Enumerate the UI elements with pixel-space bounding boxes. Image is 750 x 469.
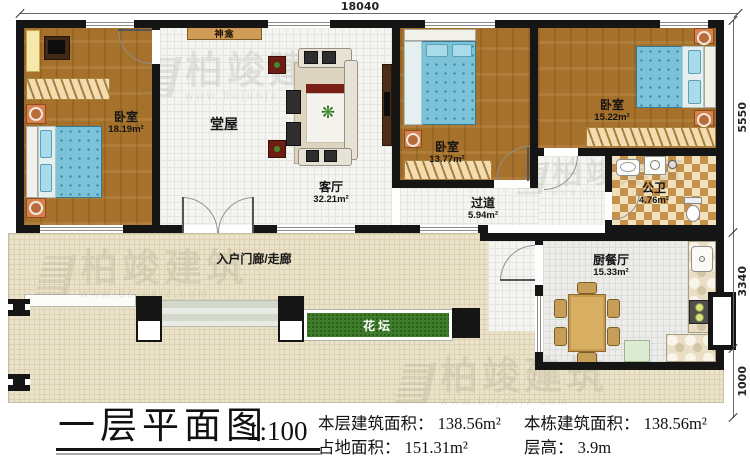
room-area: 18.19m²	[108, 124, 143, 135]
pillar-notch	[25, 379, 30, 385]
dimension-right-value: 5550	[736, 102, 749, 133]
bed-headboard	[26, 126, 38, 198]
burner-icon	[695, 313, 704, 322]
side-table	[268, 56, 286, 74]
pillow	[40, 130, 52, 158]
room-name: 公卫	[639, 181, 669, 195]
room-name: 卧室	[429, 140, 464, 154]
entry-steps	[160, 300, 282, 327]
window	[535, 296, 543, 352]
room-label-hall: 堂屋	[210, 116, 238, 133]
room-label-bedroom-mid: 卧室 13.77m²	[429, 140, 464, 166]
tv-icon	[48, 40, 65, 54]
stat-value: 3.9m	[578, 438, 611, 457]
pillar-notch	[8, 304, 13, 310]
room-label-porch: 入户门廊/走廊	[216, 252, 291, 266]
wall	[605, 225, 724, 233]
plant-icon	[274, 146, 280, 152]
window	[277, 225, 355, 233]
pillow	[426, 44, 448, 57]
sofa-cushion	[324, 150, 337, 162]
room-name: 客厅	[313, 180, 348, 194]
tv-icon	[384, 92, 390, 116]
window	[425, 20, 495, 28]
room-area: 32.21m²	[313, 194, 348, 205]
lamp-icon	[697, 31, 711, 45]
room-area: 15.33m²	[593, 267, 629, 278]
flower-bed-label: 花坛	[363, 317, 393, 334]
stat-floor-area: 本层建筑面积： 138.56m²	[318, 410, 501, 434]
door-leaf	[527, 147, 529, 181]
room-label-corridor: 过道 5.94m²	[468, 196, 498, 222]
dimension-text: 5550	[736, 102, 749, 133]
porch-column	[452, 308, 480, 338]
room-name: 过道	[468, 196, 498, 210]
stat-value: 151.31m²	[405, 438, 468, 457]
wall	[535, 362, 724, 370]
wardrobe	[26, 78, 110, 100]
stat-label: 层高：	[524, 438, 574, 457]
window	[660, 20, 708, 28]
toilet-tank	[684, 197, 702, 204]
room-name: 卧室	[108, 110, 143, 124]
nightstand	[26, 198, 46, 218]
stat-value: 138.56m²	[438, 414, 501, 433]
toilet-bowl	[686, 205, 700, 222]
dimension-right-value: 3340	[736, 266, 749, 297]
armchair	[286, 122, 301, 146]
plant-icon: ❋	[319, 104, 337, 122]
lamp-icon	[29, 201, 43, 215]
room-label-bedroom-right: 卧室 15.22m²	[594, 98, 629, 124]
wall	[16, 20, 24, 233]
dimension-right-value: 1000	[736, 366, 749, 397]
room-area: 5.94m²	[468, 210, 498, 221]
plan-scale: 1:100	[246, 418, 308, 445]
sink-basin-icon	[620, 162, 636, 172]
room-area: 4.76m²	[639, 195, 669, 206]
stat-footprint: 占地面积： 151.31m²	[318, 434, 468, 458]
door-leaf	[500, 279, 535, 281]
flower-bed: 花坛	[304, 310, 452, 340]
burner-icon	[695, 303, 704, 312]
dining-chair	[554, 299, 567, 318]
plan-title: 一层平面图	[58, 408, 268, 445]
room-name: 卧室	[594, 98, 629, 112]
room-name: 入户门廊/走廊	[216, 252, 291, 266]
bed-sheet	[404, 41, 422, 125]
porch-column	[278, 296, 304, 319]
door-opening	[605, 192, 612, 220]
door-opening	[544, 148, 578, 156]
nightstand	[404, 130, 422, 148]
room-area: 13.77m²	[429, 154, 464, 165]
door-leaf	[118, 29, 152, 31]
room-label-living: 客厅 32.21m²	[313, 180, 348, 206]
window	[268, 20, 330, 28]
stat-label: 本层建筑面积：	[318, 414, 434, 433]
nightstand	[694, 28, 714, 44]
room-name: 堂屋	[210, 116, 238, 133]
window	[420, 225, 478, 233]
fridge	[624, 340, 650, 362]
door-leaf	[182, 197, 184, 233]
door-opening	[716, 300, 724, 340]
pillar-notch	[25, 304, 30, 310]
stat-label: 本栋建筑面积：	[524, 414, 640, 433]
pillow	[688, 50, 701, 74]
dimension-top-value: 18040	[330, 0, 390, 13]
nightstand	[26, 104, 46, 124]
sofa-cushion	[322, 51, 336, 64]
room-label-kitchen: 厨餐厅 15.33m²	[593, 253, 629, 279]
lamp-icon	[697, 113, 711, 127]
wall	[530, 20, 538, 188]
floor-plan: 花坛 柏竣建筑 www.bojunjz.com 柏竣建筑 www.bojunjz…	[0, 0, 750, 469]
porch-column	[136, 296, 162, 319]
pillar-notch	[8, 379, 13, 385]
shrine-label: 神龛	[214, 27, 234, 40]
porch-column-base	[278, 319, 304, 342]
pillow	[452, 44, 472, 57]
washer-door-icon	[650, 160, 660, 170]
wardrobe	[586, 127, 716, 147]
room-name: 厨餐厅	[593, 253, 629, 267]
bed-headboard	[404, 29, 476, 41]
pillow	[40, 164, 52, 192]
title-underline	[56, 448, 320, 451]
title-underline-shadow	[56, 453, 320, 455]
faucet-icon	[699, 256, 705, 262]
dining-table	[568, 294, 606, 352]
plan-scale-text: 1:100	[246, 416, 308, 446]
stat-building-area: 本栋建筑面积： 138.56m²	[524, 410, 707, 434]
stat-height: 层高： 3.9m	[524, 434, 611, 458]
sofa-cushion	[306, 150, 319, 162]
side-table	[268, 140, 286, 158]
nightstand	[694, 110, 714, 126]
plan-title-text: 一层平面图	[58, 406, 268, 447]
door-opening	[535, 245, 543, 285]
dining-chair	[554, 327, 567, 346]
room-label-bathroom: 公卫 4.76m²	[639, 181, 669, 207]
porch-column-base	[136, 319, 162, 342]
dimension-line-right	[733, 20, 734, 418]
sofa	[344, 60, 358, 160]
shower-head-icon	[668, 160, 677, 169]
window	[86, 20, 134, 28]
floor-mat	[26, 30, 40, 72]
wall	[480, 233, 724, 241]
dimension-text: 18040	[341, 0, 379, 13]
plant-icon	[274, 62, 280, 68]
room-label-bedroom-left: 卧室 18.19m²	[108, 110, 143, 136]
door-leaf	[252, 197, 254, 233]
lamp-icon	[29, 107, 43, 121]
dining-chair	[577, 282, 597, 294]
lamp-icon	[406, 133, 420, 147]
dining-chair	[607, 299, 620, 318]
porch-path	[24, 294, 136, 307]
pillow	[688, 80, 701, 104]
dining-chair	[607, 327, 620, 346]
stat-label: 占地面积：	[318, 438, 401, 457]
shrine-cabinet: 神龛	[187, 27, 262, 40]
wall	[392, 20, 400, 188]
stat-value: 138.56m²	[644, 414, 707, 433]
bed-headboard	[704, 46, 716, 108]
dimension-text: 3340	[736, 266, 749, 297]
sofa-cushion	[304, 51, 318, 64]
door-opening	[494, 180, 530, 188]
wall	[716, 20, 724, 233]
dimension-text: 1000	[736, 366, 749, 397]
armchair	[286, 90, 301, 114]
door-opening	[152, 30, 160, 64]
window	[40, 225, 123, 233]
dimension-line-top	[20, 13, 738, 14]
room-area: 15.22m²	[594, 112, 629, 123]
